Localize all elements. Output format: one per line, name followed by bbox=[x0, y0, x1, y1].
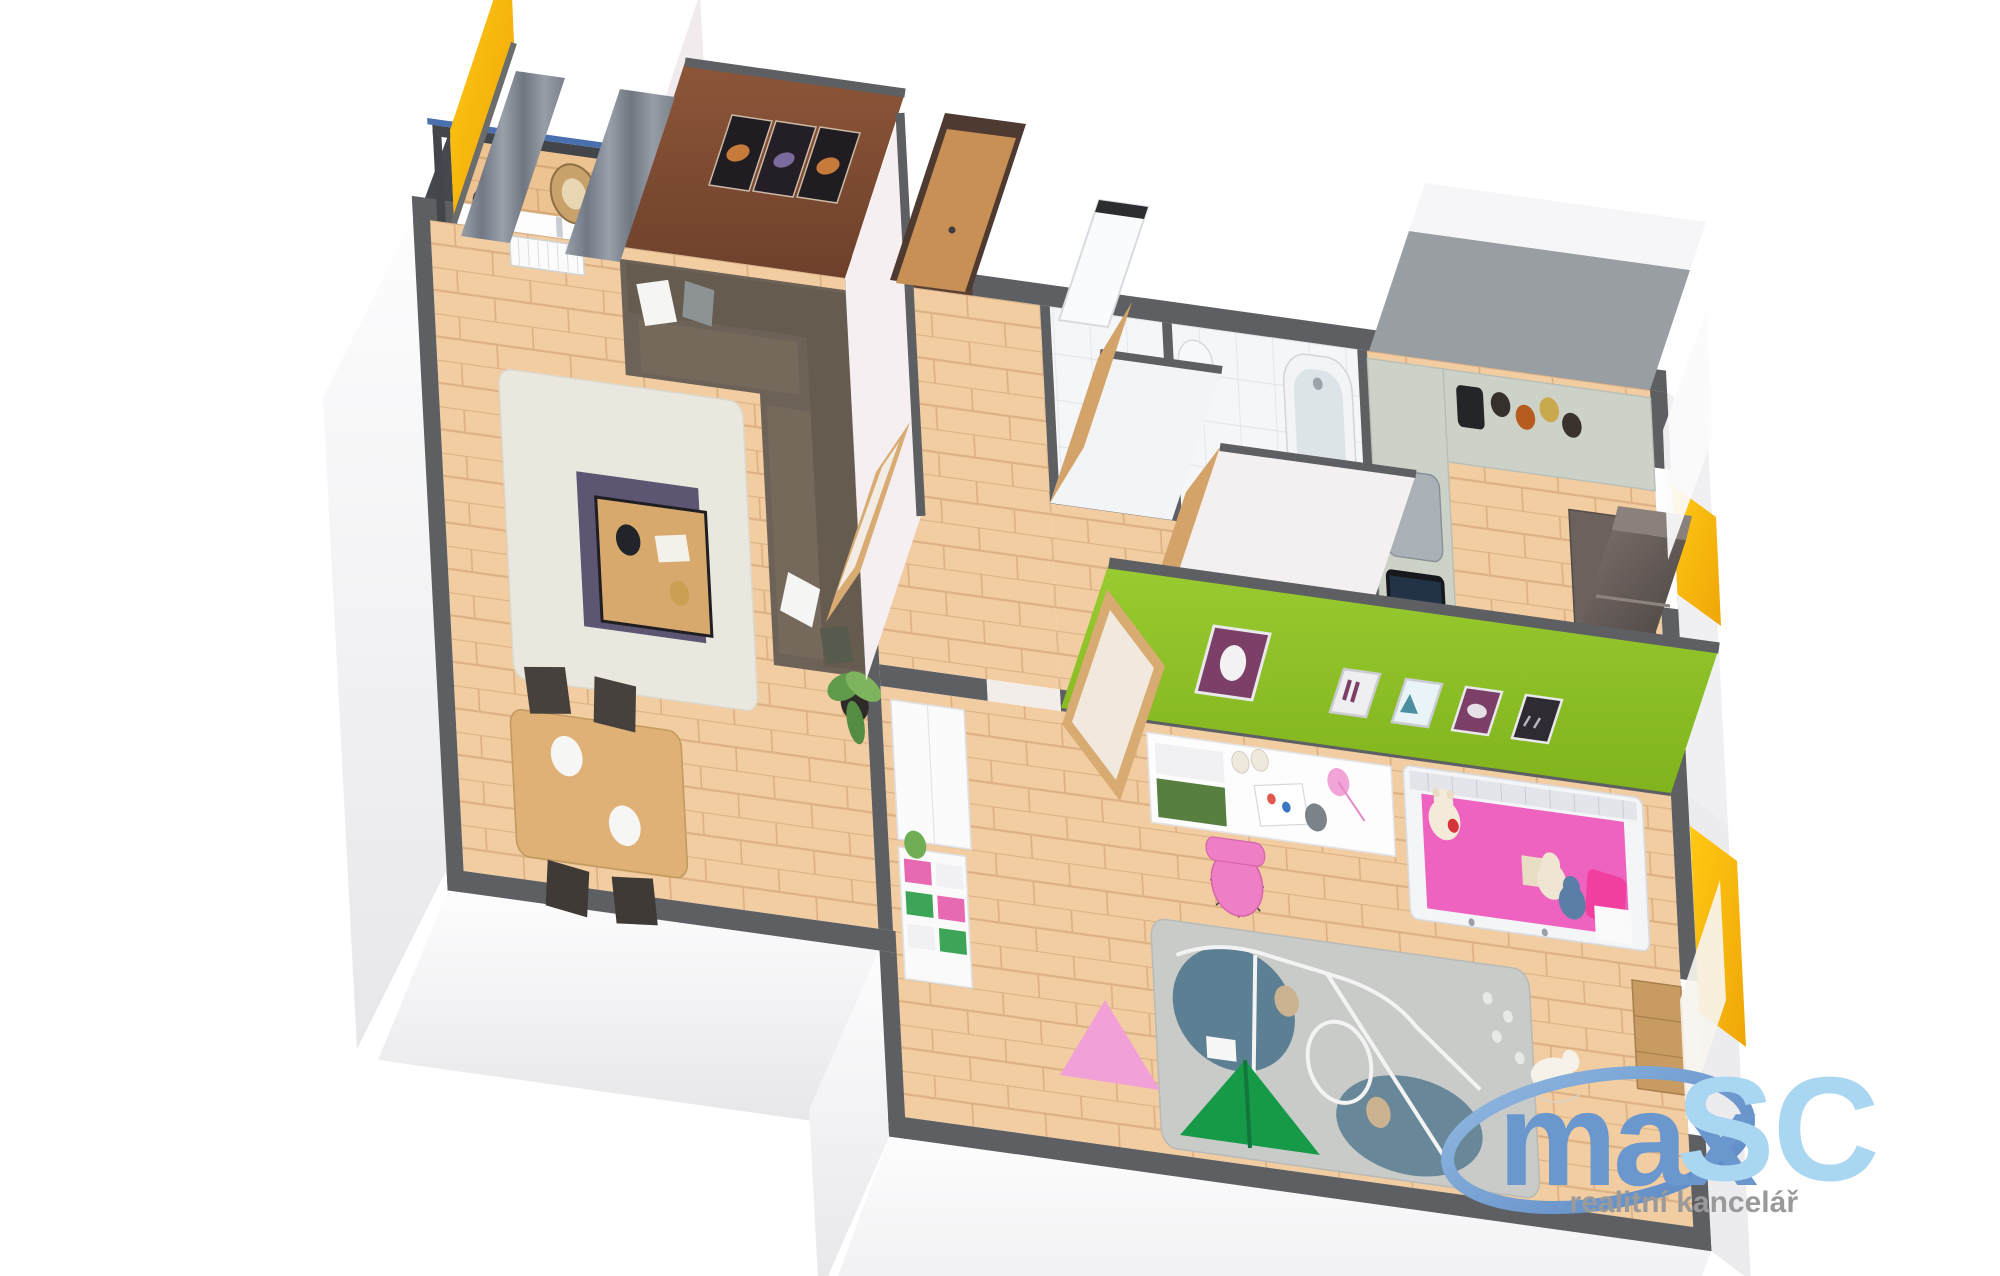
window-mullion bbox=[556, 217, 563, 238]
dining-chair bbox=[524, 667, 571, 714]
drawing-paper bbox=[1254, 784, 1308, 826]
coffee-maker bbox=[1456, 385, 1485, 431]
brand-logo: max SC realitní kancelář bbox=[1438, 1047, 1878, 1227]
white-blanket bbox=[1594, 905, 1632, 944]
dining-chair bbox=[612, 877, 658, 926]
bin-white bbox=[936, 863, 964, 890]
floor-plan-page: max SC realitní kancelář bbox=[0, 0, 2000, 1276]
rug-car bbox=[1206, 1036, 1236, 1062]
bin-white bbox=[907, 924, 935, 951]
floor-plan-render: max SC realitní kancelář bbox=[0, 0, 2000, 1276]
table-books bbox=[655, 535, 690, 563]
coffee-table bbox=[596, 497, 712, 636]
dining-table bbox=[510, 708, 688, 879]
logo-tagline: realitní kancelář bbox=[1570, 1186, 1799, 1219]
bin-pink bbox=[937, 895, 965, 922]
bin-green bbox=[906, 891, 934, 918]
bin-pink bbox=[904, 858, 932, 885]
door-handle-icon bbox=[949, 227, 956, 234]
bin-green bbox=[939, 928, 967, 955]
